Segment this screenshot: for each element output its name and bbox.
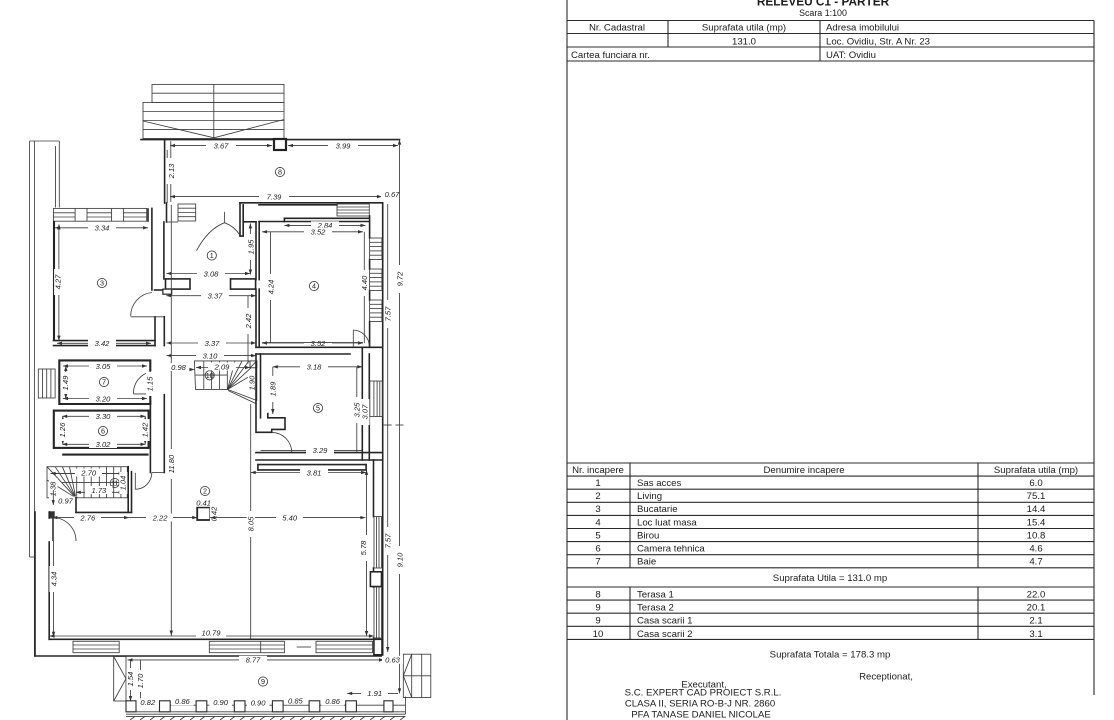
svg-text:0.86: 0.86 bbox=[325, 697, 341, 706]
svg-text:7.57: 7.57 bbox=[384, 306, 393, 322]
svg-text:2.1: 2.1 bbox=[1029, 616, 1042, 627]
svg-text:3.07: 3.07 bbox=[361, 404, 370, 420]
svg-text:3: 3 bbox=[595, 504, 600, 515]
svg-text:10.79: 10.79 bbox=[201, 628, 221, 637]
svg-text:131.0: 131.0 bbox=[732, 37, 756, 48]
svg-text:3.81: 3.81 bbox=[307, 468, 322, 477]
svg-text:1.91: 1.91 bbox=[367, 689, 382, 698]
svg-text:8.05: 8.05 bbox=[247, 516, 256, 532]
svg-text:PFA TANASE DANIEL NICOLAE: PFA TANASE DANIEL NICOLAE bbox=[631, 710, 771, 720]
svg-text:Scara 1:100: Scara 1:100 bbox=[799, 8, 847, 18]
svg-text:1.15: 1.15 bbox=[146, 376, 155, 392]
svg-text:1.42: 1.42 bbox=[141, 422, 150, 438]
svg-text:Loc. Ovidiu, Str. A Nr. 23: Loc. Ovidiu, Str. A Nr. 23 bbox=[826, 37, 930, 48]
svg-text:11: 11 bbox=[111, 479, 118, 488]
svg-text:9: 9 bbox=[595, 603, 600, 614]
svg-text:3.08: 3.08 bbox=[204, 269, 220, 278]
svg-text:11.80: 11.80 bbox=[167, 454, 176, 473]
svg-text:4: 4 bbox=[312, 282, 316, 291]
svg-text:6: 6 bbox=[101, 427, 105, 436]
svg-text:1: 1 bbox=[210, 251, 214, 260]
svg-text:Living: Living bbox=[637, 491, 662, 502]
svg-text:Casa scarii 2: Casa scarii 2 bbox=[637, 629, 692, 640]
svg-text:S.C. EXPERT CAD PROIECT S.R.L.: S.C. EXPERT CAD PROIECT S.R.L. bbox=[625, 688, 782, 699]
svg-text:75.1: 75.1 bbox=[1027, 491, 1046, 502]
svg-text:4: 4 bbox=[595, 517, 601, 528]
svg-text:14.4: 14.4 bbox=[1027, 504, 1046, 515]
svg-text:3.1: 3.1 bbox=[1029, 629, 1042, 640]
svg-text:1.90: 1.90 bbox=[247, 375, 256, 391]
svg-text:1.73: 1.73 bbox=[92, 486, 108, 495]
svg-text:CLASA II, SERIA RO-B-J NR. 286: CLASA II, SERIA RO-B-J NR. 2860 bbox=[625, 699, 775, 710]
svg-text:1: 1 bbox=[595, 478, 600, 489]
svg-text:Nr. Cadastral: Nr. Cadastral bbox=[589, 23, 645, 34]
svg-text:2.70: 2.70 bbox=[80, 468, 97, 477]
svg-text:5: 5 bbox=[595, 530, 600, 541]
svg-text:0.90: 0.90 bbox=[251, 699, 267, 708]
svg-text:Suprafata Utila = 131.0 mp: Suprafata Utila = 131.0 mp bbox=[773, 573, 887, 584]
svg-text:0.85: 0.85 bbox=[288, 697, 304, 706]
svg-text:9.10: 9.10 bbox=[395, 552, 404, 568]
svg-text:3.67: 3.67 bbox=[214, 141, 230, 150]
svg-text:2.42: 2.42 bbox=[244, 313, 253, 330]
svg-text:0.63: 0.63 bbox=[385, 656, 401, 665]
svg-text:Camera tehnica: Camera tehnica bbox=[637, 544, 705, 555]
svg-text:1.49: 1.49 bbox=[61, 375, 70, 391]
svg-text:3.18: 3.18 bbox=[307, 363, 323, 372]
svg-text:2.09: 2.09 bbox=[214, 362, 231, 371]
svg-text:0.86: 0.86 bbox=[175, 697, 191, 706]
svg-text:2.22: 2.22 bbox=[152, 513, 169, 522]
svg-text:1.95: 1.95 bbox=[246, 239, 255, 255]
svg-text:2.13: 2.13 bbox=[167, 163, 176, 180]
svg-text:3.20: 3.20 bbox=[96, 394, 112, 403]
svg-text:3.34: 3.34 bbox=[95, 224, 110, 233]
svg-text:4.6: 4.6 bbox=[1029, 544, 1042, 555]
svg-text:Adresa imobilului: Adresa imobilului bbox=[826, 23, 899, 34]
svg-text:5: 5 bbox=[316, 404, 320, 413]
svg-text:Suprafata utila (mp): Suprafata utila (mp) bbox=[994, 465, 1078, 476]
svg-text:9: 9 bbox=[261, 677, 265, 686]
svg-text:Terasa 1: Terasa 1 bbox=[637, 590, 674, 601]
svg-text:10: 10 bbox=[206, 371, 214, 380]
svg-text:1.54: 1.54 bbox=[126, 672, 135, 687]
svg-text:3.37: 3.37 bbox=[208, 292, 224, 301]
svg-text:2: 2 bbox=[595, 491, 600, 502]
svg-text:3: 3 bbox=[100, 279, 104, 288]
svg-text:0.67: 0.67 bbox=[385, 190, 401, 199]
svg-text:Casa scarii 1: Casa scarii 1 bbox=[637, 616, 692, 627]
svg-text:5.40: 5.40 bbox=[282, 513, 298, 522]
svg-text:1.26: 1.26 bbox=[58, 422, 67, 438]
svg-text:Nr. incapere: Nr. incapere bbox=[572, 465, 624, 476]
svg-text:3.52: 3.52 bbox=[311, 228, 327, 237]
svg-text:0.97: 0.97 bbox=[58, 496, 74, 505]
svg-text:4.7: 4.7 bbox=[1029, 557, 1042, 568]
svg-text:0.90: 0.90 bbox=[213, 698, 229, 707]
svg-text:4.24: 4.24 bbox=[266, 280, 275, 295]
svg-text:4.27: 4.27 bbox=[54, 274, 63, 290]
svg-text:Suprafata Totala = 178.3 mp: Suprafata Totala = 178.3 mp bbox=[770, 650, 891, 661]
svg-text:3.02: 3.02 bbox=[96, 440, 112, 449]
svg-text:8: 8 bbox=[595, 590, 600, 601]
svg-text:7: 7 bbox=[595, 557, 600, 568]
svg-text:7: 7 bbox=[102, 378, 106, 387]
svg-text:3.37: 3.37 bbox=[205, 339, 221, 348]
svg-text:0.98: 0.98 bbox=[171, 363, 187, 372]
svg-text:9: 9 bbox=[595, 616, 600, 627]
svg-text:20.1: 20.1 bbox=[1027, 603, 1046, 614]
svg-text:Cartea funciara nr.: Cartea funciara nr. bbox=[571, 50, 650, 61]
svg-text:22.0: 22.0 bbox=[1027, 590, 1046, 601]
svg-text:3.42: 3.42 bbox=[95, 339, 111, 348]
svg-text:7.57: 7.57 bbox=[384, 533, 393, 549]
svg-text:1.70: 1.70 bbox=[136, 673, 145, 689]
svg-text:0.41: 0.41 bbox=[196, 499, 211, 508]
svg-text:3.10: 3.10 bbox=[203, 351, 219, 360]
svg-text:6: 6 bbox=[595, 544, 600, 555]
svg-text:4.34: 4.34 bbox=[49, 572, 58, 587]
svg-text:3.99: 3.99 bbox=[336, 141, 352, 150]
svg-text:2.76: 2.76 bbox=[79, 513, 96, 522]
svg-text:4.40: 4.40 bbox=[360, 275, 369, 291]
svg-text:Bucatarie: Bucatarie bbox=[637, 504, 678, 515]
svg-text:Suprafata utila (mp): Suprafata utila (mp) bbox=[702, 23, 786, 34]
svg-text:UAT: Ovidiu: UAT: Ovidiu bbox=[826, 50, 876, 61]
svg-text:Birou: Birou bbox=[637, 530, 659, 541]
svg-text:1.04: 1.04 bbox=[119, 476, 128, 491]
svg-text:Sas acces: Sas acces bbox=[637, 478, 681, 489]
svg-text:10.8: 10.8 bbox=[1027, 530, 1046, 541]
svg-text:0.42: 0.42 bbox=[209, 506, 218, 522]
svg-text:6.0: 6.0 bbox=[1029, 478, 1042, 489]
svg-text:10: 10 bbox=[593, 629, 604, 640]
svg-text:3.30: 3.30 bbox=[96, 412, 112, 421]
svg-text:8: 8 bbox=[278, 168, 282, 177]
svg-text:0.82: 0.82 bbox=[140, 698, 156, 707]
svg-text:2: 2 bbox=[203, 487, 207, 496]
svg-text:5.78: 5.78 bbox=[359, 540, 368, 556]
svg-text:Receptionat,: Receptionat, bbox=[859, 672, 913, 683]
svg-text:Denumire incapere: Denumire incapere bbox=[763, 465, 844, 476]
svg-text:15.4: 15.4 bbox=[1027, 517, 1046, 528]
svg-text:Loc luat masa: Loc luat masa bbox=[637, 517, 697, 528]
svg-text:8.77: 8.77 bbox=[246, 656, 262, 665]
svg-text:9.72: 9.72 bbox=[395, 271, 404, 287]
svg-text:Baie: Baie bbox=[637, 557, 656, 568]
svg-text:3.05: 3.05 bbox=[96, 362, 112, 371]
svg-text:Terasa 2: Terasa 2 bbox=[637, 603, 674, 614]
svg-text:1.89: 1.89 bbox=[269, 381, 278, 397]
svg-text:3.29: 3.29 bbox=[313, 446, 329, 455]
svg-text:7.39: 7.39 bbox=[267, 192, 283, 201]
